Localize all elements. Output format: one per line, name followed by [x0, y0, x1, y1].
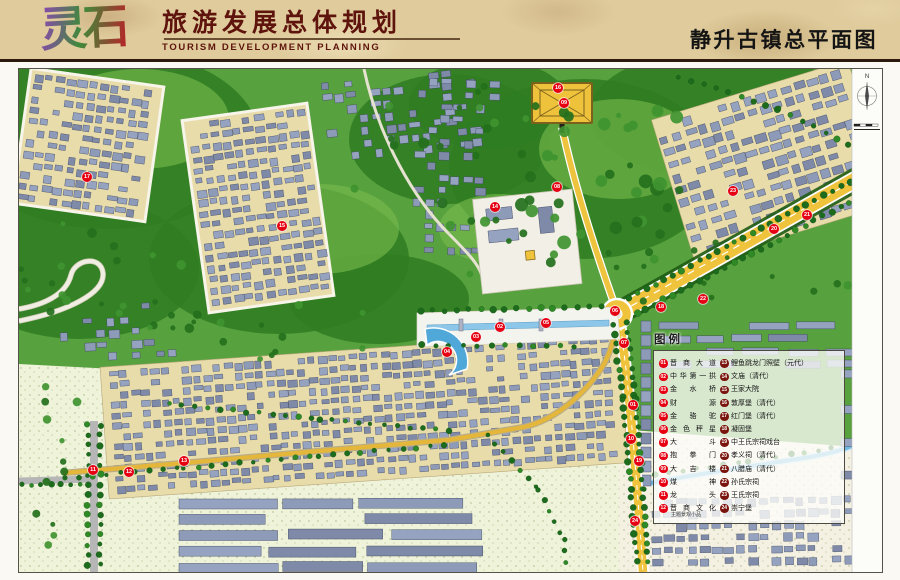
map-marker-22[interactable]: 22: [698, 294, 708, 304]
map-marker-17[interactable]: 17: [82, 172, 92, 182]
map-marker-01[interactable]: 01: [628, 400, 638, 410]
header-bar: 灵石 旅游发展总体规划 TOURISM DEVELOPMENT PLANNING…: [0, 0, 900, 62]
map-marker-08[interactable]: 08: [552, 182, 562, 192]
map-marker-12[interactable]: 12: [124, 467, 134, 477]
map-marker-13[interactable]: 13: [179, 456, 189, 466]
map-marker-10[interactable]: 10: [626, 434, 636, 444]
map-marker-18[interactable]: 18: [656, 302, 666, 312]
map-marker-09[interactable]: 09: [559, 98, 569, 108]
map-marker-16[interactable]: 16: [553, 83, 563, 93]
brand-logo: 灵石: [39, 0, 128, 60]
map-marker-11[interactable]: 11: [88, 465, 98, 475]
map-marker-23[interactable]: 23: [728, 186, 738, 196]
map-marker-24[interactable]: 24: [630, 516, 640, 526]
title-block: 旅游发展总体规划 TOURISM DEVELOPMENT PLANNING: [162, 10, 460, 53]
map-markers-layer: 0102030405060708091011121314151617181920…: [19, 69, 882, 572]
map-marker-07[interactable]: 07: [619, 338, 629, 348]
map-marker-14[interactable]: 14: [490, 202, 500, 212]
map-marker-02[interactable]: 02: [495, 322, 505, 332]
map-marker-21[interactable]: 21: [802, 210, 812, 220]
map-marker-15[interactable]: 15: [277, 221, 287, 231]
map-marker-03[interactable]: 03: [471, 332, 481, 342]
map-canvas: N 01020304050607080910111213141516171819…: [18, 68, 883, 573]
map-marker-19[interactable]: 19: [634, 456, 644, 466]
map-marker-20[interactable]: 20: [769, 224, 779, 234]
report-title: 旅游发展总体规划: [162, 10, 460, 37]
map-marker-04[interactable]: 04: [442, 347, 452, 357]
title-underline: [164, 38, 460, 40]
map-marker-06[interactable]: 06: [610, 306, 620, 316]
map-marker-05[interactable]: 05: [541, 318, 551, 328]
page-title: 静升古镇总平面图: [690, 24, 878, 54]
report-title-en: TOURISM DEVELOPMENT PLANNING: [162, 42, 460, 53]
